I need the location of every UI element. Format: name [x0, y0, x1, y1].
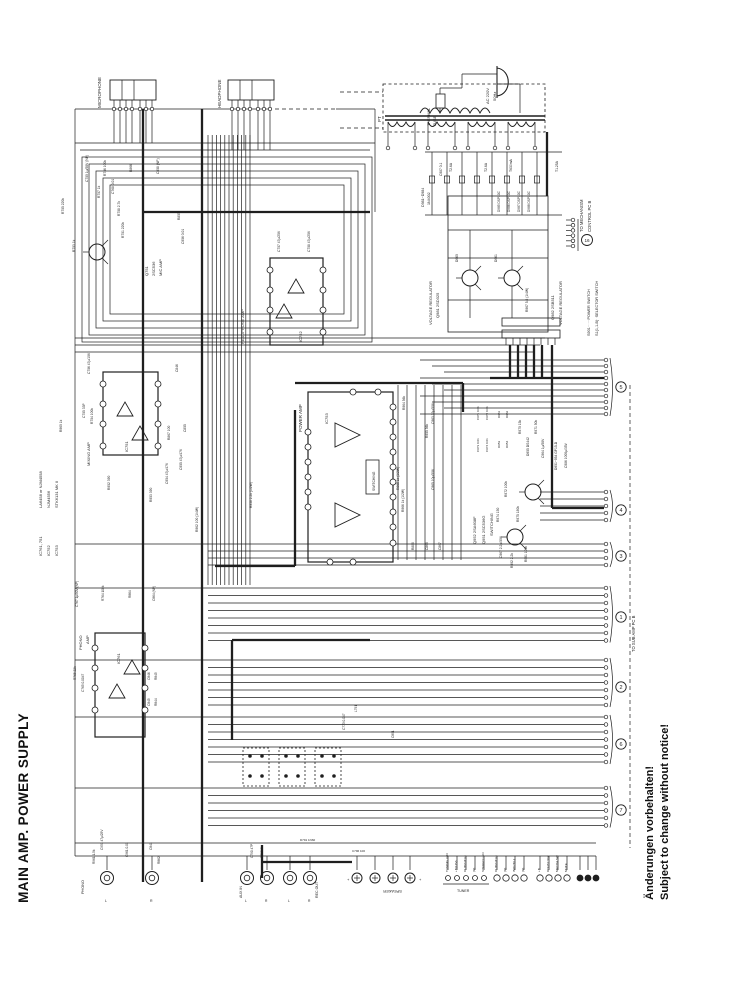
- schematic-label: MIXING AMP: [86, 442, 91, 466]
- schematic-label: Q981 2SD325: [435, 292, 440, 318]
- schematic-label: (R): [521, 868, 525, 872]
- schematic-label: R: [150, 899, 153, 903]
- schematic-label: L: [288, 899, 290, 903]
- schematic-label: D981~D984: [421, 188, 425, 207]
- schematic-label: DOLBY SW: [546, 856, 550, 872]
- schematic-label: R756 100k: [103, 160, 107, 176]
- schematic-label: C841: [149, 842, 153, 850]
- schematic-label: C790 47P: [250, 844, 254, 858]
- schematic-label: D985 DSP10C: [497, 190, 501, 212]
- schematic-label: R764 100k: [101, 585, 105, 601]
- schematic-label: D791 1N60: [300, 838, 316, 842]
- schematic-label: C765 0.0047: [81, 674, 85, 692]
- schematic-label: R965 1k (1/2W): [396, 467, 400, 490]
- schematic-label: R952 390: [107, 476, 111, 490]
- schematic-label: C758 47µ/25V: [307, 230, 311, 252]
- schematic-label: R790 1k: [260, 846, 264, 858]
- connector-number-text: 5: [619, 385, 622, 391]
- schematic-label: L791: [354, 705, 358, 712]
- connector-number-text: 3: [619, 554, 622, 560]
- schematic-label: IC752: [46, 545, 51, 556]
- schematic-label: REC OUT: [315, 881, 319, 898]
- schematic-label: Q951 2SC536G: [481, 516, 486, 544]
- schematic-label: +: [347, 877, 350, 882]
- schematic-label: STK6131 MK II: [54, 481, 59, 508]
- schematic-label: PT: [377, 116, 382, 122]
- schematic-label: IC753: [324, 413, 329, 424]
- connector-number: 1: [616, 612, 626, 622]
- schematic-label: C757 47µ/25V: [277, 230, 281, 252]
- schematic-label: AMP: [85, 635, 90, 644]
- schematic-label: LA6458 or NJM4558: [38, 471, 43, 508]
- schematic-label: D955 DS442: [526, 437, 530, 456]
- schematic-label: C846: [147, 672, 151, 680]
- schematic-label: R: [265, 899, 268, 903]
- schematic-label: C858 (NP): [156, 158, 160, 174]
- schematic-label: C967 2.2µ/50V: [499, 535, 503, 558]
- schematic-label: R864: [128, 590, 132, 598]
- schematic-label: R967 5.6 (1/4W): [525, 288, 529, 312]
- schematic-label: C961 0.01: [125, 842, 129, 857]
- schematic-label: POWER AMP: [298, 404, 303, 432]
- diagram-title: MAIN AMP. POWER SUPPLY: [16, 713, 31, 908]
- schematic-label: R866: [129, 164, 133, 172]
- schematic-label: C796 100: [352, 849, 365, 853]
- schematic-label: C864 (NP): [152, 586, 156, 601]
- schematic-label: 2SC536: [151, 261, 156, 276]
- schematic-label: MIC AMP: [158, 259, 163, 276]
- schematic-label: R971 50k: [534, 420, 538, 434]
- schematic-label: C964 1µ/50V: [541, 438, 545, 458]
- schematic-label: THERMAL: [427, 108, 431, 126]
- change-notice: Änderungen vorbehalten! Subject to chang…: [644, 724, 671, 900]
- connector-number-text: 7: [619, 808, 622, 814]
- schematic-label: MUTE: [564, 863, 568, 872]
- schematic-label: NJM4556: [46, 490, 51, 508]
- schematic-label: T630mA: [509, 158, 513, 172]
- schematic-label: S901······POWER SWITCH: [587, 289, 591, 336]
- schematic-label: OUTPUT(L): [463, 856, 467, 873]
- schematic-label: D954: [505, 440, 509, 448]
- connector-number: 6: [616, 739, 626, 749]
- schematic-label: R966 1k (1/2W): [401, 489, 405, 512]
- schematic-label: D952: [505, 410, 509, 418]
- schematic-label: R753 1k: [72, 239, 76, 252]
- schematic-label: 50Hz: [492, 92, 497, 101]
- schematic-label: R960 1k: [59, 419, 63, 432]
- schematic-label: C986 1000µ/35V: [564, 442, 568, 468]
- schematic-label: R845: [154, 672, 158, 680]
- schematic-label: C846: [175, 364, 179, 372]
- schematic-label: MECHA SW: [555, 855, 559, 872]
- schematic-label: R953 390: [149, 488, 153, 502]
- schematic-label: IC761: [116, 653, 121, 664]
- schematic-label: C773 0.047: [342, 713, 346, 730]
- schematic-label: C891: [391, 730, 395, 738]
- schematic-label: R961 1.5k: [92, 849, 96, 864]
- schematic-label: D951: [497, 410, 501, 418]
- schematic-label: +B: [537, 868, 541, 872]
- schematic-label: R758 2.7k: [117, 201, 121, 216]
- schematic-label: D987 DSP10C: [517, 190, 521, 212]
- schematic-page: MICROPHONEHEADPHONEPTTHERMALFUSEAC 220V5…: [0, 0, 740, 988]
- connector-number: 4: [616, 505, 626, 515]
- schematic-label: L: [245, 899, 247, 903]
- schematic-label: VOLTAGE REGULATOR: [558, 281, 563, 325]
- schematic-label: R958 2.2k (1/2W): [249, 482, 253, 508]
- schematic-label: SWITCHING: [372, 471, 376, 491]
- schematic-label: D961: [494, 254, 498, 262]
- schematic-label: Q751: [144, 265, 149, 276]
- schematic-label: R964 56k: [402, 396, 406, 410]
- schematic-label: HEADPHONE: [217, 79, 222, 108]
- schematic-label: C756 47µ/10V: [87, 352, 91, 374]
- schematic-label: D960: [455, 254, 459, 262]
- schematic-label: CONTROL PC B: [587, 201, 592, 232]
- schematic-canvas: MICROPHONEHEADPHONEPTTHERMALFUSEAC 220V5…: [0, 0, 740, 988]
- schematic-label: R962 100 (1/4W): [195, 507, 199, 532]
- schematic-label: S1(1,1-B)··SELECTOR SWITCH: [595, 281, 599, 336]
- schematic-label: C972 0.01: [485, 406, 489, 420]
- schematic-label: IC751: [124, 441, 129, 452]
- schematic-label: C974 0.01: [485, 438, 489, 452]
- schematic-label: R991 100k: [524, 546, 528, 562]
- connector-number-text: 6: [619, 742, 622, 748]
- schematic-label: R757 1k: [97, 185, 101, 198]
- schematic-label: (R): [503, 868, 507, 872]
- schematic-label: Q952 2SA608F: [472, 516, 477, 544]
- schematic-label: L: [105, 899, 107, 903]
- schematic-label: R765 22k: [73, 666, 77, 680]
- schematic-label: T1.25A: [555, 160, 559, 172]
- schematic-label: C767 1µ/50V (NP): [75, 581, 79, 607]
- schematic-label: IC752: [298, 331, 303, 342]
- schematic-label: R755 220k: [61, 198, 65, 214]
- schematic-label: R751 220k: [121, 222, 125, 238]
- schematic-label: D986 DSP10C: [507, 190, 511, 212]
- schematic-label: VOLTAGE REGULATOR: [428, 281, 433, 325]
- schematic-label: TUNER: [457, 889, 470, 893]
- notice-german: Änderungen vorbehalten!: [644, 766, 656, 900]
- schematic-label: D951~954 GP15-D: [554, 441, 558, 470]
- schematic-label: D988 DSP10C: [527, 190, 531, 212]
- schematic-label: SPEAKER: [383, 889, 402, 894]
- schematic-label: TO MECHANISM: [579, 199, 584, 232]
- schematic-label: PHONO: [81, 880, 85, 894]
- schematic-label: MICROPHONE: [97, 77, 102, 108]
- schematic-label: R975 180k: [516, 506, 520, 522]
- schematic-label: C971 0.01: [476, 406, 480, 420]
- schematic-wiring: [75, 74, 630, 882]
- connector-number: 5: [616, 382, 626, 392]
- schematic-label: R974 150: [496, 508, 500, 522]
- schematic-label: INPUT(L): [512, 859, 516, 872]
- diagram-title-text: MAIN AMP. POWER SUPPLY: [16, 713, 31, 903]
- schematic-label: C868: [425, 542, 429, 550]
- schematic-label: R754 100k: [90, 408, 94, 424]
- schematic-label: C755 33P: [82, 403, 86, 418]
- schematic-label: R886: [411, 542, 415, 550]
- connector-number-text: 2: [619, 685, 622, 691]
- schematic-label: R867 100: [167, 426, 171, 440]
- schematic-label: D953: [497, 440, 501, 448]
- schematic-label: HEADPHONE AMP: [240, 309, 245, 344]
- schematic-label: C855: [183, 424, 187, 432]
- connector-number: 16: [582, 235, 593, 246]
- schematic-label: C987 0.1: [439, 162, 443, 176]
- schematic-label: TO SUB AMP PC B: [631, 615, 636, 652]
- schematic-label: C954 47µ/47V: [165, 462, 169, 484]
- schematic-label: +B(12V): [454, 861, 458, 872]
- schematic-label: IC761, 751: [38, 536, 43, 556]
- schematic-label: R970 15k: [518, 420, 522, 434]
- schematic-label: 1N4002: [427, 192, 431, 205]
- connector-number: 2: [616, 682, 626, 692]
- schematic-label: STEREO LED: [481, 852, 485, 872]
- schematic-label: R955 56k: [425, 424, 429, 438]
- schematic-label: IC753: [54, 545, 59, 556]
- schematic-label: C867: [438, 542, 442, 550]
- schematic-label: R972 100k: [504, 481, 508, 497]
- schematic-label: R844: [154, 698, 158, 706]
- schematic-label: R862: [157, 856, 161, 864]
- schematic-label: C963 33µ/50V: [431, 402, 435, 424]
- schematic-label: C973 0.01: [476, 438, 480, 452]
- schematic-label: R: [308, 899, 311, 903]
- schematic-label: Q982 2SB511: [550, 294, 555, 320]
- schematic-label: PHONO: [78, 635, 83, 650]
- notice-english: Subject to change without notice!: [659, 724, 671, 900]
- schematic-labels: MICROPHONEHEADPHONEPTTHERMALFUSEAC 220V5…: [38, 77, 636, 903]
- schematic-label: FUSE: [433, 115, 437, 126]
- schematic-label: C768 0.01: [111, 179, 115, 194]
- schematic-label: R855: [177, 212, 181, 220]
- schematic-label: TUNING LED: [445, 852, 449, 872]
- connector-number-text: 16: [584, 238, 590, 243]
- schematic-label: T2.6A: [449, 162, 453, 172]
- connector-number-text: 1: [619, 615, 622, 621]
- schematic-label: R992 2.2k: [510, 553, 514, 568]
- schematic-label: C965 10µ/50V: [431, 468, 435, 490]
- schematic-label: C955 47µ/47V: [179, 448, 183, 470]
- schematic-label: AC 220V: [485, 88, 490, 104]
- schematic-label: (R): [472, 868, 476, 872]
- schematic-label: +: [419, 877, 422, 882]
- connector-number: 7: [616, 805, 626, 815]
- schematic-label: T2.6A: [484, 162, 488, 172]
- schematic-label: OUTPUT(L): [494, 856, 498, 873]
- schematic-label: C845: [147, 698, 151, 706]
- schematic-label: C956 0.01: [181, 229, 185, 244]
- connector-number-text: 4: [619, 508, 622, 514]
- schematic-label: C951 47µ/25V: [100, 829, 104, 850]
- schematic-label: C750 1µ/50V (NP): [85, 155, 89, 182]
- schematic-label: SWITCHING: [489, 513, 494, 536]
- connector-number: 3: [616, 551, 626, 561]
- schematic-label: AUX IN: [239, 886, 243, 898]
